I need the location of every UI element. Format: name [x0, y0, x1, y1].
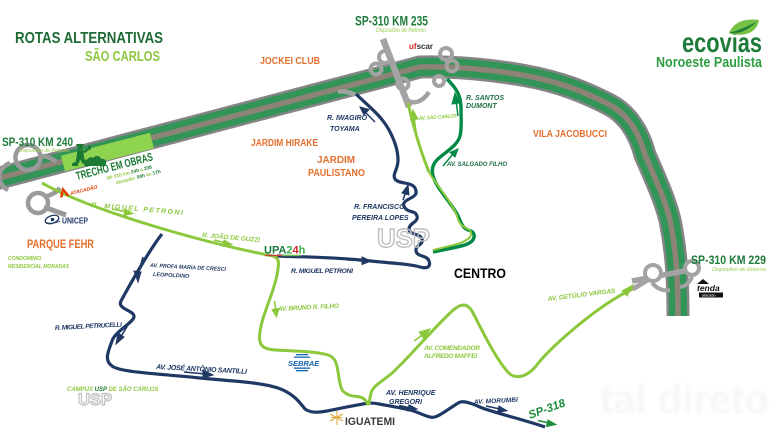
svg-text:SP-310 KM 235: SP-310 KM 235	[355, 14, 428, 29]
svg-text:SÃO CARLOS: SÃO CARLOS	[85, 47, 160, 65]
svg-text:AV. SALGADO FILHO: AV. SALGADO FILHO	[446, 161, 507, 168]
svg-text:tal direto: tal direto	[600, 378, 769, 422]
svg-text:R. MIGUEL PETRUCELLI: R. MIGUEL PETRUCELLI	[55, 321, 122, 332]
svg-text:GREGORI: GREGORI	[389, 399, 423, 406]
svg-text:IGUATEMI: IGUATEMI	[345, 416, 395, 428]
svg-text:atacado: atacado	[702, 294, 716, 298]
svg-text:AV. BRUNO R. FILHO: AV. BRUNO R. FILHO	[277, 303, 339, 313]
svg-text:JOCKEI CLUB: JOCKEI CLUB	[260, 56, 320, 67]
svg-text:R. IWAGIRO: R. IWAGIRO	[327, 115, 368, 122]
svg-text:PEREIRA LOPES: PEREIRA LOPES	[352, 215, 409, 222]
svg-text:DUMONT: DUMONT	[466, 103, 497, 110]
svg-text:Dispositivo de Retorno: Dispositivo de Retorno	[712, 267, 766, 273]
svg-text:JARDIM: JARDIM	[317, 155, 355, 166]
svg-text:USP: USP	[78, 390, 112, 409]
svg-text:AV. COMENDADOR: AV. COMENDADOR	[423, 345, 480, 352]
svg-text:USP: USP	[377, 223, 430, 253]
svg-text:SP-310 KM 240: SP-310 KM 240	[2, 135, 73, 149]
svg-text:R. MIGUEL PETRONI: R. MIGUEL PETRONI	[291, 268, 353, 275]
svg-text:SP-310 KM 229: SP-310 KM 229	[691, 253, 766, 267]
svg-text:R. SANTOS: R. SANTOS	[466, 95, 504, 102]
svg-text:SEBRAE: SEBRAE	[288, 359, 320, 368]
svg-text:CENTRO: CENTRO	[454, 265, 506, 281]
svg-text:Dispositivo de Retorno: Dispositivo de Retorno	[19, 148, 69, 154]
svg-text:R. MIGUEL PETRONI: R. MIGUEL PETRONI	[91, 202, 184, 217]
svg-text:ROTAS ALTERNATIVAS: ROTAS ALTERNATIVAS	[15, 30, 163, 47]
svg-text:ATACADÃO: ATACADÃO	[68, 183, 98, 197]
svg-text:LEOPOLDINO: LEOPOLDINO	[153, 272, 190, 280]
svg-text:AV. GETÚLIO VARGAS: AV. GETÚLIO VARGAS	[546, 286, 616, 303]
svg-text:ALFREDO MAFFEI: ALFREDO MAFFEI	[423, 353, 477, 360]
svg-text:SP-318: SP-318	[527, 397, 568, 422]
svg-text:AV. SÃO CARLOS: AV. SÃO CARLOS	[418, 112, 458, 122]
svg-text:JARDIM HIRAKE: JARDIM HIRAKE	[251, 138, 318, 149]
svg-text:AV. MORUMBI: AV. MORUMBI	[473, 397, 518, 406]
svg-text:PARQUE FEHR: PARQUE FEHR	[27, 237, 94, 251]
svg-text:UPA24h: UPA24h	[264, 245, 306, 257]
svg-text:RESIDENCIAL MORADAS: RESIDENCIAL MORADAS	[8, 264, 70, 270]
svg-text:Noroeste Paulista: Noroeste Paulista	[656, 55, 763, 71]
svg-text:AV. HENRIQUE: AV. HENRIQUE	[385, 390, 436, 397]
svg-text:VILA JACOBUCCI: VILA JACOBUCCI	[533, 129, 607, 140]
svg-text:R. FRANCISCO: R. FRANCISCO	[354, 204, 405, 211]
svg-text:CONDOMÍNIO: CONDOMÍNIO	[8, 255, 41, 262]
svg-text:UNICEP: UNICEP	[62, 217, 89, 226]
svg-text:TOYAMA: TOYAMA	[330, 126, 360, 133]
svg-text:PAULISTANO: PAULISTANO	[308, 168, 365, 179]
svg-text:tenda: tenda	[697, 283, 720, 293]
svg-text:Dispositivo de Retorno: Dispositivo de Retorno	[376, 28, 427, 34]
svg-text:ufscar: ufscar	[409, 42, 433, 51]
